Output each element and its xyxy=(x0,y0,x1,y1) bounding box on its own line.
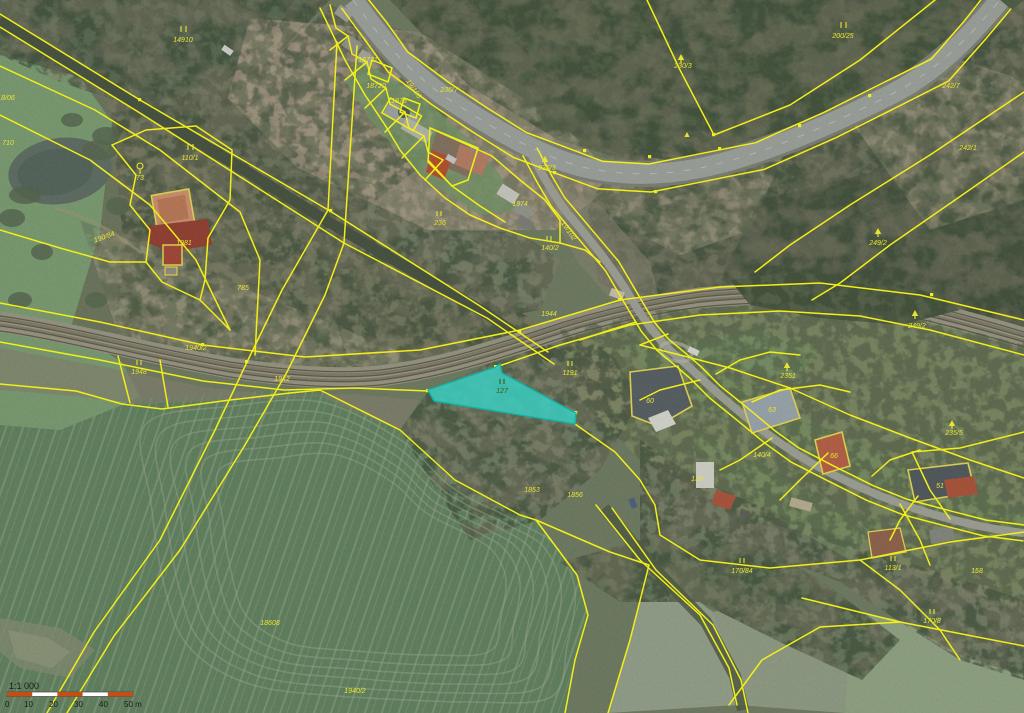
svg-text:18731: 18731 xyxy=(358,57,378,64)
svg-text:18720: 18720 xyxy=(366,83,386,90)
svg-text:110/1: 110/1 xyxy=(182,155,199,162)
svg-text:236/7: 236/7 xyxy=(439,87,459,94)
svg-text:1948: 1948 xyxy=(131,369,147,376)
svg-text:140/2: 140/2 xyxy=(541,245,559,252)
svg-text:113/1: 113/1 xyxy=(885,565,902,572)
svg-text:242/7: 242/7 xyxy=(941,83,961,90)
svg-text:710: 710 xyxy=(2,140,14,147)
svg-text:60: 60 xyxy=(646,398,654,405)
svg-text:785: 785 xyxy=(237,285,249,292)
svg-text:73: 73 xyxy=(136,175,144,182)
svg-text:1940/2: 1940/2 xyxy=(344,688,366,695)
svg-text:1853: 1853 xyxy=(524,487,540,494)
svg-text:1940/2: 1940/2 xyxy=(185,345,207,352)
svg-text:66: 66 xyxy=(830,453,838,460)
svg-text:1981: 1981 xyxy=(176,240,192,247)
svg-text:18608: 18608 xyxy=(260,620,280,627)
svg-text:127: 127 xyxy=(496,388,509,395)
svg-text:170/8: 170/8 xyxy=(923,618,941,625)
svg-text:0: 0 xyxy=(5,700,10,709)
svg-text:1944: 1944 xyxy=(541,311,557,318)
svg-text:1975: 1975 xyxy=(391,98,407,105)
svg-text:1191: 1191 xyxy=(562,370,577,377)
svg-text:140/4: 140/4 xyxy=(753,452,771,459)
svg-text:51: 51 xyxy=(936,483,944,490)
svg-text:2351: 2351 xyxy=(779,373,796,380)
svg-text:10: 10 xyxy=(24,700,33,709)
svg-text:158: 158 xyxy=(971,568,983,575)
svg-text:1974: 1974 xyxy=(512,201,528,208)
svg-text:50 m: 50 m xyxy=(124,700,142,709)
svg-text:242/1: 242/1 xyxy=(958,145,977,152)
svg-text:14910: 14910 xyxy=(173,37,193,44)
svg-text:230/3: 230/3 xyxy=(673,63,692,70)
svg-text:236: 236 xyxy=(433,220,446,227)
svg-text:236/3: 236/3 xyxy=(537,165,556,172)
svg-text:1:1 000: 1:1 000 xyxy=(9,681,39,691)
svg-text:235/5: 235/5 xyxy=(944,430,963,437)
svg-text:20: 20 xyxy=(49,700,58,709)
svg-text:30: 30 xyxy=(74,700,83,709)
svg-text:139: 139 xyxy=(691,476,703,483)
svg-text:170/84: 170/84 xyxy=(731,568,753,575)
svg-text:249/2: 249/2 xyxy=(868,240,887,247)
svg-text:200/25: 200/25 xyxy=(831,33,854,40)
svg-text:249/2: 249/2 xyxy=(907,323,926,330)
svg-text:40: 40 xyxy=(99,700,108,709)
svg-text:63: 63 xyxy=(768,407,776,414)
svg-text:1856: 1856 xyxy=(567,492,583,499)
svg-text:1942: 1942 xyxy=(274,376,290,383)
svg-text:18/06: 18/06 xyxy=(0,95,15,102)
